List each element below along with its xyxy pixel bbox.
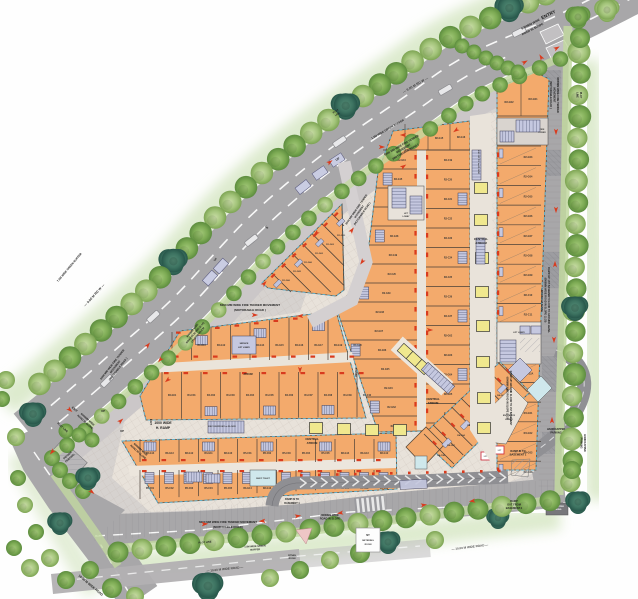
- svg-text:R2-C26: R2-C26: [444, 296, 453, 299]
- svg-text:R2-C25: R2-C25: [444, 276, 453, 279]
- svg-text:R2-C27: R2-C27: [444, 315, 453, 318]
- svg-text:R3-G13: R3-G13: [165, 452, 174, 455]
- svg-text:R1-G06: R1-G06: [304, 262, 312, 264]
- svg-text:R4-C06: R4-C06: [285, 394, 294, 397]
- svg-text:LINE: LINE: [576, 92, 579, 98]
- svg-text:R4-G13: R4-G13: [197, 344, 206, 347]
- svg-text:BUFFER: BUFFER: [250, 548, 260, 552]
- svg-text:R2-G07: R2-G07: [524, 235, 533, 238]
- svg-text:LENGTH=43.00 MM: LENGTH=43.00 MM: [540, 289, 543, 312]
- svg-text:R2-C23: R2-C23: [444, 237, 453, 240]
- svg-text:R1-G05: R1-G05: [337, 235, 345, 237]
- svg-text:R5-C01: R5-C01: [146, 487, 155, 490]
- svg-text:R5-C02: R5-C02: [263, 452, 272, 455]
- svg-text:R2-G09: R2-G09: [524, 274, 533, 277]
- svg-text:PARKING: PARKING: [580, 438, 583, 449]
- svg-text:R2-G07: R2-G07: [375, 330, 384, 333]
- svg-text:LIFT LOBBY: LIFT LOBBY: [238, 347, 250, 349]
- svg-text:ATRIUM: ATRIUM: [428, 401, 439, 405]
- svg-text:R2-G08: R2-G08: [376, 311, 385, 314]
- svg-text:ATRIUM: ATRIUM: [475, 241, 487, 245]
- svg-text:MT: MT: [366, 534, 370, 537]
- svg-text:R4-C04: R4-C04: [457, 434, 465, 437]
- svg-text:H. RAMP: H. RAMP: [156, 426, 171, 430]
- svg-text:R4-G14: R4-G14: [256, 344, 265, 347]
- svg-text:R4-G17: R4-G17: [314, 344, 323, 347]
- svg-text:BASEMENT 1: BASEMENT 1: [284, 502, 300, 505]
- svg-text:RAMP: RAMP: [510, 499, 518, 503]
- svg-text:R2-C20: R2-C20: [444, 179, 453, 182]
- svg-text:R5-C04: R5-C04: [302, 452, 311, 455]
- svg-text:RAMP IN TO: RAMP IN TO: [510, 449, 525, 453]
- svg-text:R4-C08: R4-C08: [324, 394, 333, 397]
- svg-text:R1-G06: R1-G06: [282, 280, 290, 282]
- svg-text:R2-G02: R2-G02: [504, 100, 514, 104]
- svg-text:R4-C08: R4-C08: [437, 454, 445, 457]
- svg-text:R4-G02: R4-G02: [524, 432, 533, 435]
- svg-text:LIFT LOBBY: LIFT LOBBY: [513, 332, 525, 334]
- svg-text:(MOTORABLE ROAD ): (MOTORABLE ROAD ): [234, 308, 266, 312]
- svg-text:R2-G16: R2-G16: [457, 136, 466, 139]
- svg-text:(MOTORABLE ROAD): (MOTORABLE ROAD): [213, 525, 243, 529]
- svg-text:R4-C03: R4-C03: [226, 394, 235, 397]
- svg-text:6000 MM WIDE FIRE TENDER MOVEM: 6000 MM WIDE FIRE TENDER MOVEMENT: [220, 303, 280, 307]
- svg-text:R4-C05: R4-C05: [265, 394, 274, 397]
- svg-text:R3-G13: R3-G13: [360, 452, 369, 455]
- svg-text:R2-G15: R2-G15: [435, 137, 444, 140]
- svg-text:R2-G15: R2-G15: [394, 178, 403, 181]
- svg-text:R4-G20: R4-G20: [353, 344, 362, 347]
- svg-text:R5-C04: R5-C04: [204, 487, 213, 490]
- svg-text:R4-C04: R4-C04: [246, 394, 255, 397]
- svg-text:R4-C01: R4-C01: [187, 394, 196, 397]
- svg-text:BASEMENT 1: BASEMENT 1: [510, 453, 527, 457]
- svg-text:R3-G11: R3-G11: [204, 452, 213, 455]
- svg-text:6000MM WIDE: 6000MM WIDE: [321, 513, 339, 517]
- svg-text:LOBBY: LOBBY: [403, 216, 411, 218]
- svg-text:R5-C03: R5-C03: [282, 452, 291, 455]
- svg-text:R2-G48: R2-G48: [390, 235, 399, 238]
- svg-text:R4-G01: R4-G01: [524, 412, 533, 415]
- svg-text:OUT FROM: OUT FROM: [507, 503, 521, 507]
- svg-text:R2-G19: R2-G19: [389, 254, 398, 257]
- svg-text:R4-G01: R4-G01: [168, 394, 177, 397]
- svg-text:FITNES: FITNES: [288, 555, 296, 557]
- svg-text:R2-C10: R2-C10: [524, 294, 533, 297]
- svg-text:R1-G05: R1-G05: [293, 271, 301, 273]
- svg-text:R4-G15: R4-G15: [275, 344, 284, 347]
- svg-text:R1-G03: R1-G03: [326, 244, 334, 246]
- svg-text:FIRE: FIRE: [540, 129, 545, 131]
- svg-text:R3-G10: R3-G10: [224, 452, 233, 455]
- svg-text:ESC DN FROM 1st FLOOR: ESC DN FROM 1st FLOOR: [208, 425, 236, 428]
- svg-text:R2-G49: R2-G49: [382, 292, 391, 295]
- svg-text:R3-G14: R3-G14: [341, 452, 350, 455]
- svg-text:R4-G16: R4-G16: [295, 344, 304, 347]
- svg-text:R4-G07: R4-G07: [447, 444, 455, 447]
- svg-text:6000 MM WIDE FIRE TENDER MOVEM: 6000 MM WIDE FIRE TENDER MOVEMENT: [199, 520, 257, 524]
- svg-text:R2-C21: R2-C21: [444, 198, 453, 201]
- svg-text:ROAD IN SLOPE: ROAD IN SLOPE: [320, 517, 341, 521]
- svg-text:R3-G13: R3-G13: [263, 487, 272, 490]
- svg-text:R2-G06: R2-G06: [524, 215, 533, 218]
- svg-text:6000MM WIDE FIRE TENDER: 6000MM WIDE FIRE TENDER: [556, 77, 560, 113]
- svg-text:1000 WIDE: 1000 WIDE: [154, 421, 172, 425]
- svg-text:R2-G08: R2-G08: [524, 255, 533, 258]
- svg-text:R3-G12: R3-G12: [380, 452, 389, 455]
- svg-text:PARKING: PARKING: [550, 432, 561, 435]
- svg-text:R4-G12: R4-G12: [217, 344, 226, 347]
- svg-text:R4-C09: R4-C09: [343, 394, 352, 397]
- svg-text:ATRIUM: ATRIUM: [243, 373, 252, 376]
- svg-text:R2-G04: R2-G04: [384, 387, 393, 390]
- svg-text:R3-G12: R3-G12: [185, 452, 194, 455]
- svg-text:R2-C11: R2-C11: [524, 314, 533, 317]
- svg-text:ATRIUM: ATRIUM: [354, 367, 357, 376]
- svg-text:ESC UP TO 1st FLOOR: ESC UP TO 1st FLOOR: [477, 150, 480, 174]
- svg-text:R2-G01: R2-G01: [528, 97, 538, 101]
- svg-text:R2-G62: R2-G62: [387, 406, 396, 409]
- svg-text:R2-C22: R2-C22: [444, 218, 453, 221]
- svg-text:R5-C05: R5-C05: [321, 452, 330, 455]
- svg-text:ATRIUM: ATRIUM: [307, 441, 318, 445]
- svg-text:R2-G05: R2-G05: [524, 195, 533, 198]
- svg-text:R2-G62: R2-G62: [444, 335, 453, 338]
- svg-text:R2-G03: R2-G03: [524, 156, 533, 159]
- svg-text:R2-C20: R2-C20: [388, 273, 397, 276]
- svg-text:R2-G04: R2-G04: [524, 176, 533, 179]
- svg-text:R2-G06: R2-G06: [378, 349, 387, 352]
- svg-text:R5-C02: R5-C02: [165, 487, 174, 490]
- svg-text:R4-G19: R4-G19: [334, 344, 343, 347]
- svg-text:R4-C02: R4-C02: [207, 394, 216, 397]
- svg-text:ROOM: ROOM: [365, 544, 372, 546]
- svg-text:SERVICE: SERVICE: [240, 343, 249, 345]
- svg-text:BASEMENT.1: BASEMENT.1: [506, 506, 523, 510]
- svg-text:R2-C24: R2-C24: [444, 257, 453, 260]
- svg-text:UP: UP: [101, 409, 105, 413]
- svg-text:R2-C19: R2-C19: [444, 159, 453, 162]
- svg-text:RAMP IN TO: RAMP IN TO: [285, 498, 299, 501]
- svg-text:R5-C05: R5-C05: [224, 487, 233, 490]
- svg-text:MULTI TOILET: MULTI TOILET: [256, 478, 270, 480]
- svg-text:R3-G14: R3-G14: [243, 487, 252, 490]
- svg-text:R2-G05: R2-G05: [381, 368, 390, 371]
- svg-text:MOVEMENT: MOVEMENT: [552, 88, 556, 103]
- svg-text:R5-C01: R5-C01: [243, 452, 252, 455]
- svg-text:R1-G02: R1-G02: [315, 253, 323, 255]
- svg-text:R4-C07: R4-C07: [304, 394, 313, 397]
- svg-text:(MOTORABLE ROAD ): (MOTORABLE ROAD ): [549, 81, 553, 109]
- svg-text:R2-G63: R2-G63: [444, 354, 453, 357]
- svg-text:R5-C03: R5-C03: [185, 487, 194, 490]
- svg-text:UP: UP: [120, 429, 124, 433]
- svg-text:ROOM: ROOM: [289, 558, 296, 560]
- svg-text:R4-C10: R4-C10: [363, 394, 372, 397]
- svg-text:6000MM WIDE ROAD IN SLOPE (1:1: 6000MM WIDE ROAD IN SLOPE (1:10): [506, 377, 509, 420]
- svg-text:EXIT: EXIT: [149, 419, 153, 426]
- svg-text:METERING: METERING: [362, 540, 374, 542]
- svg-text:TOWER: TOWER: [538, 132, 546, 134]
